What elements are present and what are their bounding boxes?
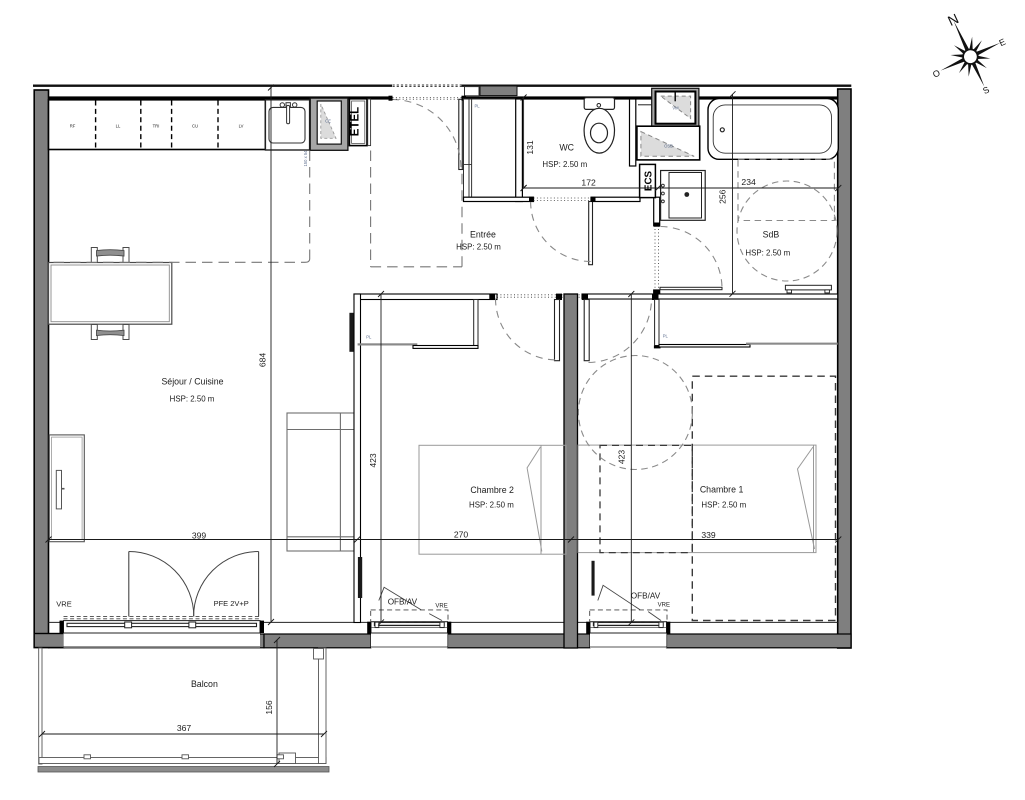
svg-text:PL: PL [366,334,372,339]
svg-text:Chambre 2: Chambre 2 [470,485,514,495]
svg-text:Entrée: Entrée [470,230,496,240]
svg-text:150 x 54: 150 x 54 [303,150,308,167]
svg-text:270: 270 [454,529,469,539]
svg-text:VRE: VRE [435,604,447,610]
svg-text:VRE: VRE [56,600,71,609]
svg-text:WC: WC [559,143,574,153]
svg-text:SdB: SdB [763,230,780,240]
svg-text:399: 399 [192,531,207,541]
svg-text:ETEL: ETEL [350,107,362,136]
svg-text:HSP: 2.50 m: HSP: 2.50 m [170,395,215,404]
svg-text:Balcon: Balcon [191,679,218,689]
svg-text:HSP: 2.50 m: HSP: 2.50 m [701,501,746,510]
svg-text:256: 256 [718,189,728,204]
svg-text:156: 156 [264,700,274,715]
svg-text:HSP: 2.50 m: HSP: 2.50 m [745,249,790,258]
svg-text:CU: CU [192,124,198,129]
svg-text:TRI: TRI [153,124,160,129]
svg-text:RF: RF [70,124,76,129]
svg-text:339: 339 [701,530,716,540]
svg-text:CE: CE [325,119,331,124]
svg-text:OFB/AV: OFB/AV [388,597,418,606]
svg-text:PFE 2V+P: PFE 2V+P [214,599,249,608]
svg-text:Séjour / Cuisine: Séjour / Cuisine [161,377,223,387]
svg-text:OSB: OSB [664,144,673,149]
svg-text:VRE: VRE [658,602,670,608]
svg-text:HSP: 2.50 m: HSP: 2.50 m [542,160,587,169]
svg-text:LV: LV [239,124,244,129]
svg-text:131: 131 [525,140,535,155]
svg-text:HSP: 2.50 m: HSP: 2.50 m [456,243,501,252]
svg-text:LL: LL [116,124,121,129]
svg-text:367: 367 [177,723,192,733]
svg-text:Chambre 1: Chambre 1 [700,484,744,494]
svg-text:423: 423 [368,453,378,468]
svg-text:OFB/AV: OFB/AV [631,591,661,600]
svg-text:VM: VM [672,106,679,111]
svg-text:423: 423 [617,450,627,465]
svg-text:684: 684 [258,353,268,368]
svg-text:PL: PL [474,104,480,109]
svg-text:PL: PL [663,334,669,339]
svg-text:HSP: 2.50 m: HSP: 2.50 m [469,500,514,509]
svg-text:234: 234 [741,177,756,187]
svg-text:172: 172 [581,177,596,187]
